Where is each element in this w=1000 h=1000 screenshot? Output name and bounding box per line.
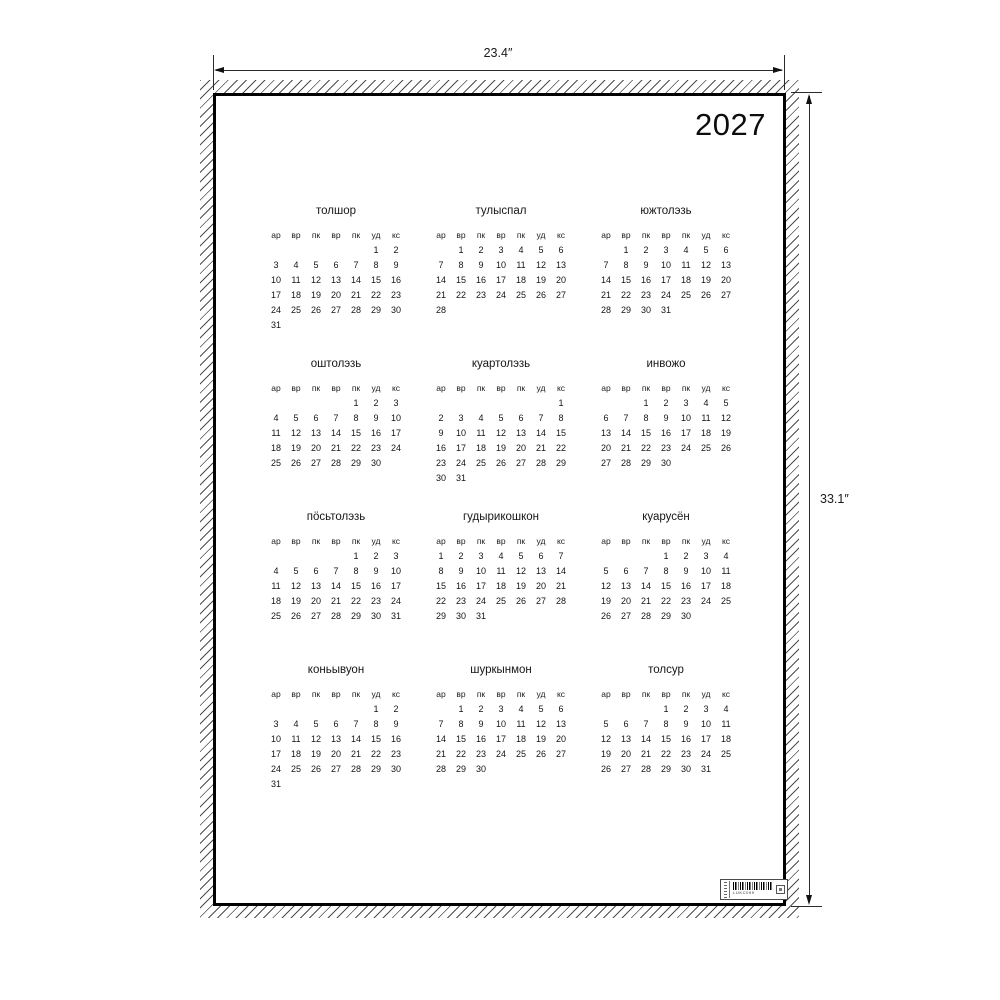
weekday-header: ар bbox=[596, 687, 616, 702]
weekday-header: пк bbox=[511, 381, 531, 396]
day-cell: 23 bbox=[386, 747, 406, 762]
weekday-header: пк bbox=[306, 381, 326, 396]
weekday-header: ар bbox=[431, 687, 451, 702]
day-cell: 16 bbox=[471, 273, 491, 288]
weekday-header: кс bbox=[716, 381, 736, 396]
day-cell: 2 bbox=[386, 243, 406, 258]
day-cell: 16 bbox=[656, 426, 676, 441]
empty-day-cell bbox=[286, 702, 306, 717]
day-cell: 5 bbox=[511, 549, 531, 564]
day-cell: 7 bbox=[551, 549, 571, 564]
empty-day-cell bbox=[716, 456, 736, 471]
weekday-header: пк bbox=[346, 687, 366, 702]
weekday-header: вр bbox=[491, 687, 511, 702]
empty-day-cell bbox=[596, 243, 616, 258]
weekday-header: уд bbox=[366, 228, 386, 243]
day-cell: 1 bbox=[346, 396, 366, 411]
width-dimension-label: 23.4″ bbox=[213, 46, 783, 60]
month-block: пӧсьтолэзьарврпкврпкудкс1234567891011121… bbox=[266, 510, 406, 663]
day-cell: 17 bbox=[386, 426, 406, 441]
weekday-header: уд bbox=[531, 381, 551, 396]
day-cell: 3 bbox=[471, 549, 491, 564]
empty-day-cell bbox=[266, 243, 286, 258]
weekday-header: ар bbox=[266, 381, 286, 396]
day-cell: 18 bbox=[716, 732, 736, 747]
empty-day-cell bbox=[511, 609, 531, 624]
day-cell: 25 bbox=[716, 747, 736, 762]
empty-day-cell bbox=[511, 762, 531, 777]
day-cell: 9 bbox=[471, 717, 491, 732]
day-cell: 18 bbox=[266, 441, 286, 456]
day-cell: 23 bbox=[366, 441, 386, 456]
day-cell: 27 bbox=[306, 456, 326, 471]
day-cell: 13 bbox=[306, 579, 326, 594]
day-cell: 21 bbox=[346, 747, 366, 762]
empty-day-cell bbox=[616, 396, 636, 411]
day-cell: 6 bbox=[326, 717, 346, 732]
day-cell: 26 bbox=[696, 288, 716, 303]
day-cell: 13 bbox=[511, 426, 531, 441]
barcode-mark-icon bbox=[776, 885, 785, 894]
day-cell: 17 bbox=[676, 426, 696, 441]
day-cell: 18 bbox=[286, 747, 306, 762]
day-cell: 22 bbox=[551, 441, 571, 456]
day-cell: 15 bbox=[366, 273, 386, 288]
day-cell: 23 bbox=[656, 441, 676, 456]
month-calendar: арврпкврпкудкс12345678910111213141516171… bbox=[431, 381, 571, 486]
day-cell: 3 bbox=[696, 702, 716, 717]
day-cell: 12 bbox=[696, 258, 716, 273]
day-cell: 21 bbox=[431, 288, 451, 303]
day-cell: 26 bbox=[286, 609, 306, 624]
day-cell: 3 bbox=[656, 243, 676, 258]
empty-day-cell bbox=[326, 318, 346, 333]
month-calendar: арврпкврпкудкс12345678910111213141516171… bbox=[596, 381, 736, 471]
weekday-header: ар bbox=[266, 228, 286, 243]
empty-day-cell bbox=[531, 303, 551, 318]
day-cell: 30 bbox=[471, 762, 491, 777]
day-cell: 6 bbox=[616, 564, 636, 579]
empty-day-cell bbox=[346, 318, 366, 333]
day-cell: 29 bbox=[346, 456, 366, 471]
day-cell: 27 bbox=[326, 762, 346, 777]
empty-day-cell bbox=[596, 702, 616, 717]
day-cell: 24 bbox=[491, 288, 511, 303]
day-cell: 1 bbox=[431, 549, 451, 564]
day-cell: 8 bbox=[346, 564, 366, 579]
day-cell: 17 bbox=[471, 579, 491, 594]
weekday-header: пк bbox=[636, 228, 656, 243]
month-block: шуркынмонарврпкврпкудкс12345678910111213… bbox=[431, 663, 571, 816]
day-cell: 21 bbox=[616, 441, 636, 456]
day-cell: 4 bbox=[266, 564, 286, 579]
day-cell: 16 bbox=[471, 732, 491, 747]
day-cell: 18 bbox=[716, 579, 736, 594]
day-cell: 27 bbox=[511, 456, 531, 471]
day-cell: 1 bbox=[636, 396, 656, 411]
day-cell: 10 bbox=[386, 411, 406, 426]
empty-day-cell bbox=[306, 318, 326, 333]
weekday-header: вр bbox=[286, 381, 306, 396]
day-cell: 26 bbox=[531, 747, 551, 762]
empty-day-cell bbox=[531, 609, 551, 624]
day-cell: 20 bbox=[511, 441, 531, 456]
day-cell: 9 bbox=[676, 564, 696, 579]
day-cell: 3 bbox=[266, 258, 286, 273]
weekday-header: уд bbox=[366, 687, 386, 702]
month-title: инвожо bbox=[596, 357, 736, 372]
month-calendar: арврпкврпкудкс12345678910111213141516171… bbox=[596, 687, 736, 777]
day-cell: 31 bbox=[386, 609, 406, 624]
day-cell: 29 bbox=[656, 609, 676, 624]
day-cell: 9 bbox=[431, 426, 451, 441]
day-cell: 6 bbox=[716, 243, 736, 258]
day-cell: 1 bbox=[366, 702, 386, 717]
day-cell: 10 bbox=[696, 564, 716, 579]
day-cell: 19 bbox=[306, 747, 326, 762]
weekday-header: пк bbox=[511, 534, 531, 549]
day-cell: 26 bbox=[716, 441, 736, 456]
day-cell: 19 bbox=[286, 594, 306, 609]
day-cell: 22 bbox=[431, 594, 451, 609]
day-cell: 12 bbox=[306, 732, 326, 747]
day-cell: 7 bbox=[636, 564, 656, 579]
day-cell: 9 bbox=[366, 564, 386, 579]
day-cell: 16 bbox=[636, 273, 656, 288]
day-cell: 14 bbox=[346, 273, 366, 288]
weekday-header: вр bbox=[616, 228, 636, 243]
empty-day-cell bbox=[491, 609, 511, 624]
day-cell: 9 bbox=[636, 258, 656, 273]
day-cell: 31 bbox=[266, 777, 286, 792]
day-cell: 16 bbox=[451, 579, 471, 594]
month-title: куартолэзь bbox=[431, 357, 571, 372]
day-cell: 8 bbox=[366, 258, 386, 273]
empty-day-cell bbox=[286, 318, 306, 333]
day-cell: 15 bbox=[551, 426, 571, 441]
day-cell: 2 bbox=[656, 396, 676, 411]
empty-day-cell bbox=[286, 396, 306, 411]
day-cell: 24 bbox=[491, 747, 511, 762]
day-cell: 6 bbox=[596, 411, 616, 426]
empty-day-cell bbox=[386, 777, 406, 792]
day-cell: 9 bbox=[656, 411, 676, 426]
empty-day-cell bbox=[491, 396, 511, 411]
month-calendar: арврпкврпкудкс12345678910111213141516171… bbox=[596, 228, 736, 318]
weekday-header: уд bbox=[696, 534, 716, 549]
weekday-header: вр bbox=[656, 381, 676, 396]
day-cell: 22 bbox=[616, 288, 636, 303]
day-cell: 31 bbox=[656, 303, 676, 318]
width-dimension-line bbox=[216, 70, 782, 71]
calendar-poster: 2027 толшорарврпкврпкудкс123456789101112… bbox=[213, 93, 786, 906]
day-cell: 10 bbox=[451, 426, 471, 441]
day-cell: 11 bbox=[471, 426, 491, 441]
empty-day-cell bbox=[636, 702, 656, 717]
weekday-header: уд bbox=[531, 534, 551, 549]
day-cell: 5 bbox=[531, 243, 551, 258]
day-cell: 13 bbox=[551, 258, 571, 273]
day-cell: 6 bbox=[306, 411, 326, 426]
weekday-header: пк bbox=[676, 381, 696, 396]
day-cell: 28 bbox=[346, 303, 366, 318]
day-cell: 10 bbox=[656, 258, 676, 273]
day-cell: 2 bbox=[366, 549, 386, 564]
day-cell: 13 bbox=[596, 426, 616, 441]
day-cell: 24 bbox=[266, 762, 286, 777]
day-cell: 5 bbox=[491, 411, 511, 426]
weekday-header: вр bbox=[286, 228, 306, 243]
day-cell: 3 bbox=[386, 396, 406, 411]
day-cell: 1 bbox=[656, 549, 676, 564]
day-cell: 24 bbox=[696, 594, 716, 609]
weekday-header: пк bbox=[471, 687, 491, 702]
day-cell: 7 bbox=[636, 717, 656, 732]
weekday-header: пк bbox=[346, 228, 366, 243]
day-cell: 1 bbox=[451, 702, 471, 717]
day-cell: 9 bbox=[471, 258, 491, 273]
weekday-header: пк bbox=[636, 534, 656, 549]
day-cell: 11 bbox=[511, 717, 531, 732]
month-calendar: арврпкврпкудкс12345678910111213141516171… bbox=[431, 228, 571, 318]
day-cell: 6 bbox=[511, 411, 531, 426]
day-cell: 10 bbox=[386, 564, 406, 579]
day-cell: 15 bbox=[656, 579, 676, 594]
day-cell: 15 bbox=[451, 732, 471, 747]
weekday-header: ар bbox=[266, 687, 286, 702]
month-calendar: арврпкврпкудкс12345678910111213141516171… bbox=[596, 534, 736, 624]
empty-day-cell bbox=[531, 396, 551, 411]
month-title: коньывуон bbox=[266, 663, 406, 678]
day-cell: 16 bbox=[676, 579, 696, 594]
day-cell: 27 bbox=[326, 303, 346, 318]
day-cell: 2 bbox=[431, 411, 451, 426]
day-cell: 12 bbox=[716, 411, 736, 426]
day-cell: 23 bbox=[676, 594, 696, 609]
empty-day-cell bbox=[266, 702, 286, 717]
day-cell: 23 bbox=[471, 288, 491, 303]
day-cell: 10 bbox=[676, 411, 696, 426]
day-cell: 7 bbox=[596, 258, 616, 273]
day-cell: 1 bbox=[346, 549, 366, 564]
weekday-header: пк bbox=[471, 534, 491, 549]
day-cell: 24 bbox=[386, 594, 406, 609]
day-cell: 20 bbox=[531, 579, 551, 594]
month-title: гудырикошкон bbox=[431, 510, 571, 525]
day-cell: 10 bbox=[266, 273, 286, 288]
day-cell: 15 bbox=[346, 426, 366, 441]
empty-day-cell bbox=[306, 702, 326, 717]
day-cell: 30 bbox=[366, 609, 386, 624]
day-cell: 17 bbox=[266, 747, 286, 762]
day-cell: 12 bbox=[596, 579, 616, 594]
day-cell: 30 bbox=[656, 456, 676, 471]
day-cell: 2 bbox=[636, 243, 656, 258]
day-cell: 9 bbox=[366, 411, 386, 426]
day-cell: 4 bbox=[676, 243, 696, 258]
day-cell: 26 bbox=[596, 762, 616, 777]
weekday-header: вр bbox=[326, 534, 346, 549]
day-cell: 21 bbox=[326, 594, 346, 609]
day-cell: 19 bbox=[696, 273, 716, 288]
day-cell: 8 bbox=[346, 411, 366, 426]
day-cell: 15 bbox=[451, 273, 471, 288]
day-cell: 22 bbox=[656, 594, 676, 609]
month-block: инвожоарврпкврпкудкс12345678910111213141… bbox=[596, 357, 736, 510]
empty-day-cell bbox=[511, 396, 531, 411]
day-cell: 2 bbox=[471, 243, 491, 258]
day-cell: 4 bbox=[491, 549, 511, 564]
empty-day-cell bbox=[716, 609, 736, 624]
day-cell: 17 bbox=[386, 579, 406, 594]
day-cell: 14 bbox=[636, 579, 656, 594]
month-calendar: арврпкврпкудкс12345678910111213141516171… bbox=[266, 381, 406, 471]
weekday-header: пк bbox=[636, 381, 656, 396]
day-cell: 30 bbox=[451, 609, 471, 624]
weekday-header: кс bbox=[386, 687, 406, 702]
day-cell: 5 bbox=[286, 564, 306, 579]
weekday-header: вр bbox=[656, 687, 676, 702]
day-cell: 6 bbox=[616, 717, 636, 732]
weekday-header: кс bbox=[551, 381, 571, 396]
month-block: южтолэзьарврпкврпкудкс123456789101112131… bbox=[596, 204, 736, 357]
arrow-down-icon bbox=[806, 895, 812, 905]
day-cell: 25 bbox=[266, 456, 286, 471]
day-cell: 2 bbox=[676, 702, 696, 717]
weekday-header: кс bbox=[551, 228, 571, 243]
width-extension-line-left bbox=[213, 55, 214, 90]
empty-day-cell bbox=[551, 303, 571, 318]
weekday-header: кс bbox=[716, 228, 736, 243]
empty-day-cell bbox=[596, 396, 616, 411]
day-cell: 22 bbox=[636, 441, 656, 456]
day-cell: 16 bbox=[386, 273, 406, 288]
weekday-header: пк bbox=[636, 687, 656, 702]
day-cell: 25 bbox=[286, 303, 306, 318]
day-cell: 11 bbox=[716, 717, 736, 732]
day-cell: 24 bbox=[386, 441, 406, 456]
weekday-header: вр bbox=[451, 534, 471, 549]
day-cell: 28 bbox=[431, 303, 451, 318]
empty-day-cell bbox=[616, 549, 636, 564]
day-cell: 30 bbox=[431, 471, 451, 486]
day-cell: 15 bbox=[636, 426, 656, 441]
day-cell: 18 bbox=[676, 273, 696, 288]
day-cell: 17 bbox=[656, 273, 676, 288]
day-cell: 23 bbox=[451, 594, 471, 609]
day-cell: 17 bbox=[696, 579, 716, 594]
day-cell: 3 bbox=[696, 549, 716, 564]
day-cell: 8 bbox=[656, 564, 676, 579]
day-cell: 30 bbox=[386, 762, 406, 777]
day-cell: 1 bbox=[656, 702, 676, 717]
day-cell: 17 bbox=[491, 732, 511, 747]
day-cell: 31 bbox=[266, 318, 286, 333]
empty-day-cell bbox=[386, 318, 406, 333]
day-cell: 11 bbox=[676, 258, 696, 273]
day-cell: 30 bbox=[366, 456, 386, 471]
empty-day-cell bbox=[616, 702, 636, 717]
weekday-header: кс bbox=[386, 228, 406, 243]
day-cell: 11 bbox=[696, 411, 716, 426]
day-cell: 29 bbox=[366, 303, 386, 318]
empty-day-cell bbox=[366, 318, 386, 333]
month-calendar: арврпкврпкудкс12345678910111213141516171… bbox=[266, 228, 406, 333]
month-calendar: арврпкврпкудкс12345678910111213141516171… bbox=[266, 534, 406, 624]
day-cell: 24 bbox=[451, 456, 471, 471]
day-cell: 14 bbox=[431, 732, 451, 747]
day-cell: 17 bbox=[266, 288, 286, 303]
day-cell: 22 bbox=[366, 288, 386, 303]
day-cell: 10 bbox=[696, 717, 716, 732]
weekday-header: пк bbox=[676, 687, 696, 702]
weekday-header: вр bbox=[656, 534, 676, 549]
day-cell: 21 bbox=[551, 579, 571, 594]
day-cell: 1 bbox=[366, 243, 386, 258]
day-cell: 21 bbox=[531, 441, 551, 456]
empty-day-cell bbox=[326, 549, 346, 564]
day-cell: 12 bbox=[596, 732, 616, 747]
month-calendar: арврпкврпкудкс12345678910111213141516171… bbox=[266, 687, 406, 792]
day-cell: 7 bbox=[346, 717, 366, 732]
day-cell: 24 bbox=[696, 747, 716, 762]
empty-day-cell bbox=[346, 243, 366, 258]
weekday-header: вр bbox=[491, 381, 511, 396]
day-cell: 12 bbox=[286, 426, 306, 441]
day-cell: 10 bbox=[491, 717, 511, 732]
day-cell: 21 bbox=[636, 594, 656, 609]
month-title: тулыспал bbox=[431, 204, 571, 219]
day-cell: 14 bbox=[531, 426, 551, 441]
day-cell: 27 bbox=[551, 747, 571, 762]
day-cell: 5 bbox=[286, 411, 306, 426]
weekday-header: уд bbox=[531, 687, 551, 702]
day-cell: 14 bbox=[636, 732, 656, 747]
day-cell: 31 bbox=[451, 471, 471, 486]
empty-day-cell bbox=[551, 609, 571, 624]
day-cell: 17 bbox=[451, 441, 471, 456]
day-cell: 19 bbox=[596, 594, 616, 609]
day-cell: 22 bbox=[451, 747, 471, 762]
barcode-label: LUKC099 bbox=[720, 879, 788, 900]
month-title: толшор bbox=[266, 204, 406, 219]
month-title: южтолэзь bbox=[596, 204, 736, 219]
day-cell: 3 bbox=[491, 243, 511, 258]
empty-day-cell bbox=[551, 762, 571, 777]
day-cell: 12 bbox=[511, 564, 531, 579]
day-cell: 24 bbox=[471, 594, 491, 609]
weekday-header: вр bbox=[491, 228, 511, 243]
weekday-header: ар bbox=[266, 534, 286, 549]
empty-day-cell bbox=[266, 549, 286, 564]
day-cell: 8 bbox=[551, 411, 571, 426]
weekday-header: уд bbox=[531, 228, 551, 243]
day-cell: 13 bbox=[616, 579, 636, 594]
day-cell: 23 bbox=[366, 594, 386, 609]
weekday-header: ар bbox=[596, 228, 616, 243]
empty-day-cell bbox=[431, 396, 451, 411]
day-cell: 20 bbox=[716, 273, 736, 288]
month-calendar: арврпкврпкудкс12345678910111213141516171… bbox=[431, 687, 571, 777]
day-cell: 15 bbox=[366, 732, 386, 747]
day-cell: 4 bbox=[471, 411, 491, 426]
day-cell: 2 bbox=[676, 549, 696, 564]
day-cell: 5 bbox=[306, 258, 326, 273]
day-cell: 29 bbox=[451, 762, 471, 777]
day-cell: 15 bbox=[431, 579, 451, 594]
empty-day-cell bbox=[306, 777, 326, 792]
day-cell: 4 bbox=[511, 243, 531, 258]
